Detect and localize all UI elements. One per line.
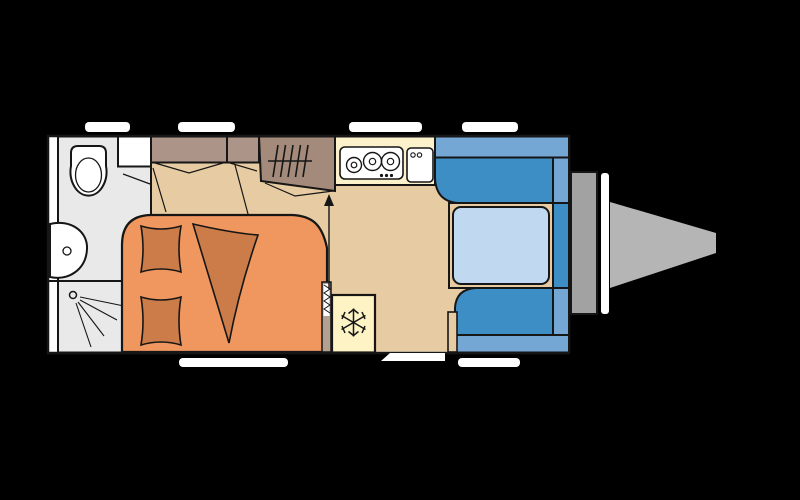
wardrobe-cabinet [151,137,227,163]
kitchen-block [335,137,435,186]
bottom-seat [455,288,553,335]
double-bed [122,215,327,352]
window [458,358,520,367]
window [85,122,130,132]
stove-icon [340,147,403,179]
dinette-seating [435,137,569,353]
floorplan-canvas [0,0,800,500]
front-trim [601,173,609,314]
stove-knob [385,174,388,177]
fridge [332,295,375,353]
cabinet-section [227,137,259,163]
stove-knob [390,174,393,177]
bottom-backrest [455,335,569,353]
window [179,358,288,367]
partition [322,282,331,352]
kitchen-sink-icon [407,148,433,182]
gas-locker [571,172,597,314]
pillow [141,297,181,345]
top-armrest [553,158,569,204]
top-seat [435,158,553,204]
pillow [141,226,181,272]
window [178,122,235,132]
table [453,207,549,284]
toilet-icon [71,146,107,196]
seat-step [448,312,457,352]
window [462,122,518,132]
bottom-armrest [553,288,569,335]
floorplan-stage [0,0,800,500]
top-backrest [435,137,569,158]
shower-head [70,292,77,299]
entrance-door [381,353,445,361]
window [349,122,422,132]
stove-knob [380,174,383,177]
bathroom-cabinet [118,137,151,167]
side-seat-strip [553,203,569,288]
